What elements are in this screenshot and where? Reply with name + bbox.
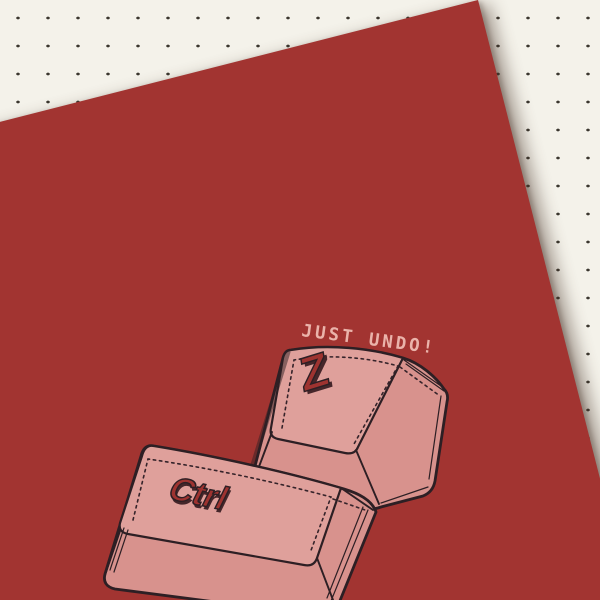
poster-artwork: Z Z Ctrl Ctrl: [0, 0, 600, 600]
scene: Z Z Ctrl Ctrl: [0, 0, 600, 600]
